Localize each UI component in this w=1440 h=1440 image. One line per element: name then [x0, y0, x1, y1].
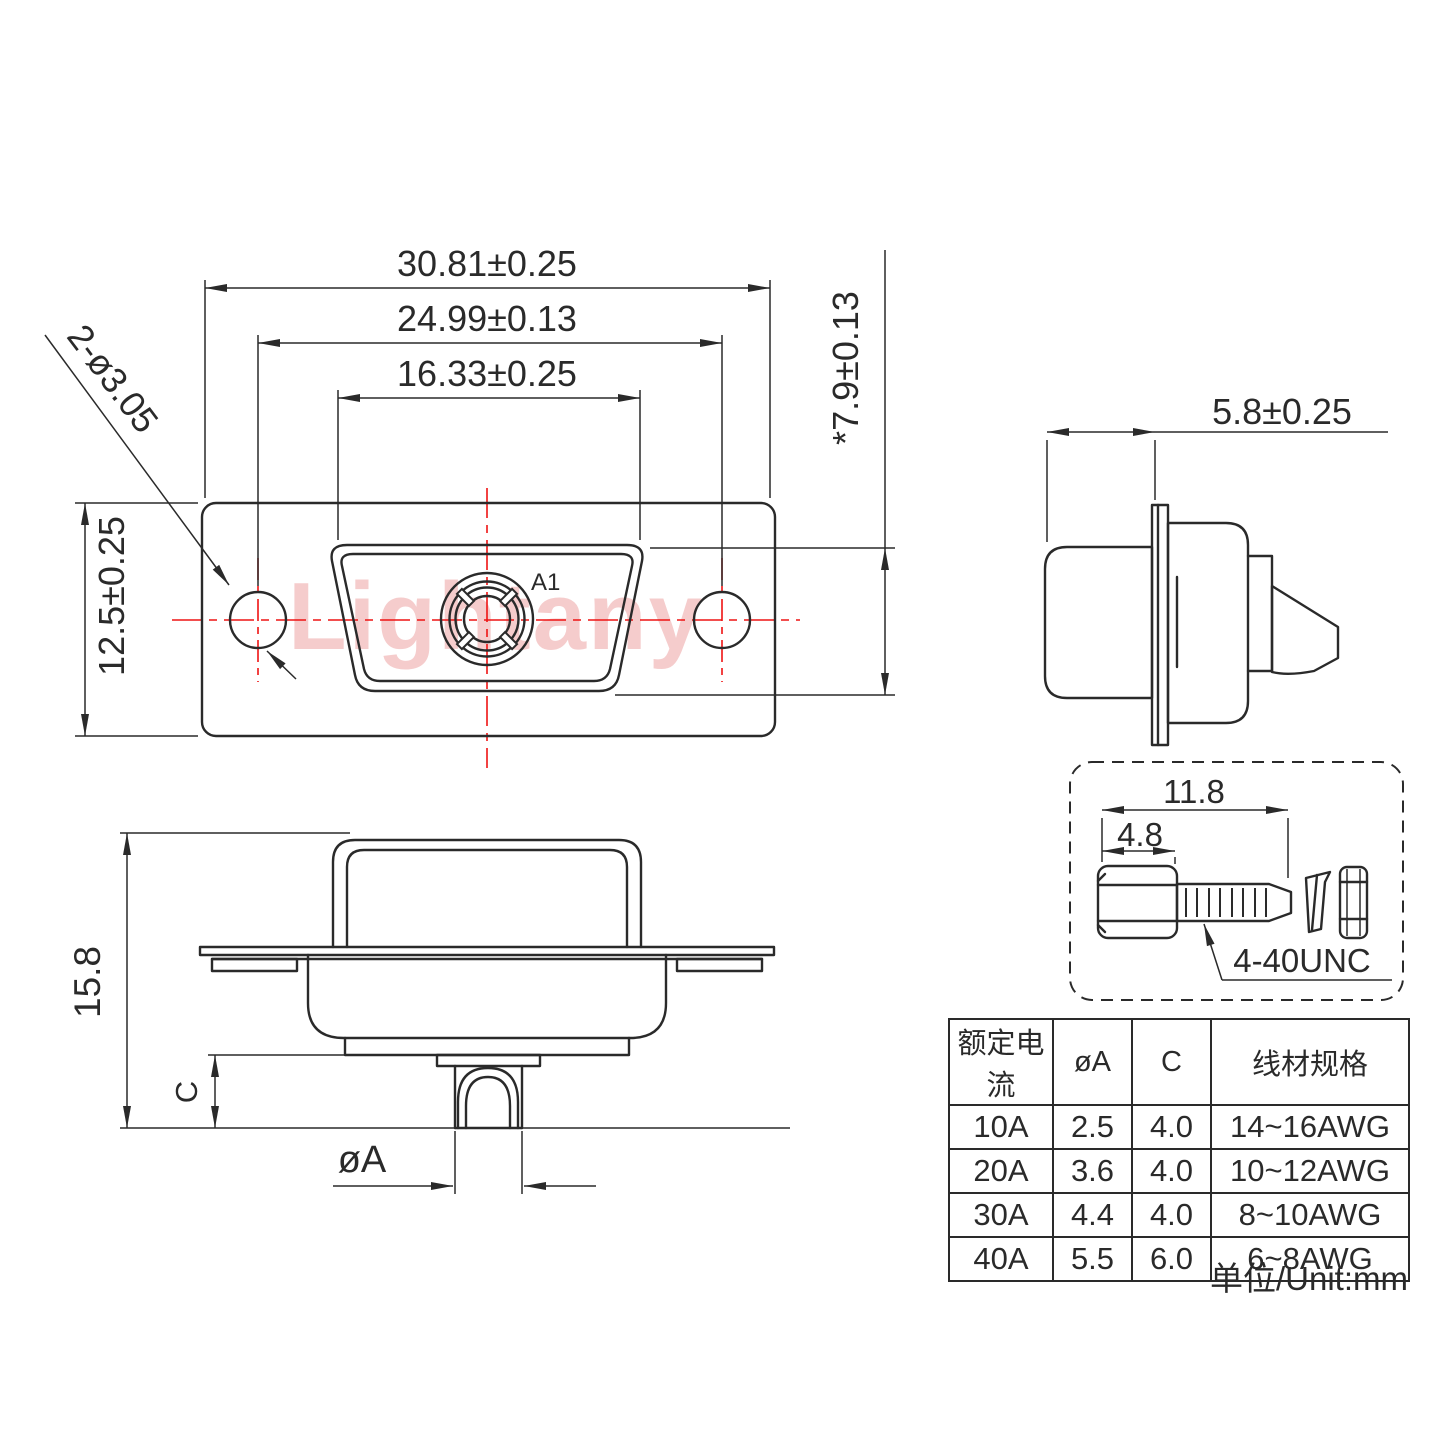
table-cell: 20A — [949, 1149, 1053, 1193]
table-cell: 2.5 — [1053, 1105, 1132, 1149]
hex-part — [1340, 867, 1367, 938]
table-header-row: 额定电流 øA C 线材规格 — [949, 1019, 1409, 1105]
table-cell: 40A — [949, 1237, 1053, 1281]
table-cell: 30A — [949, 1193, 1053, 1237]
dim-label-screw-head: 4.8 — [1117, 816, 1163, 853]
side-body-step — [1248, 556, 1272, 671]
section-shell-outer — [333, 840, 641, 947]
jack-screw — [1098, 866, 1291, 938]
dim-pin-diameter: øA — [333, 1131, 596, 1194]
dim-label-shell-height: *7.9±0.13 — [825, 291, 866, 445]
dim-label-mount-holes: 2-ø3.05 — [59, 317, 166, 441]
screw-shaft — [1177, 884, 1291, 921]
dim-label-outer-width: 30.81±0.25 — [397, 243, 577, 284]
section-flange — [200, 947, 774, 955]
table-row: 30A 4.4 4.0 8~10AWG — [949, 1193, 1409, 1237]
dim-screw-head: 4.8 — [1102, 816, 1175, 864]
thread-spec-label: 4-40UNC — [1233, 942, 1371, 979]
thread-callout: 4-40UNC — [1204, 924, 1392, 980]
side-wire-cone — [1272, 586, 1338, 674]
dim-label-screw-total: 11.8 — [1163, 773, 1225, 810]
screw-head — [1098, 866, 1177, 938]
dim-shell-width: 16.33±0.25 — [338, 353, 640, 540]
table-header-wire: 线材规格 — [1211, 1019, 1409, 1105]
front-view: A1 30.81±0.25 24.99±0.13 — [45, 243, 895, 768]
screw-threads — [1186, 888, 1266, 917]
section-flange-tab-right — [677, 959, 762, 971]
table-cell: 14~16AWG — [1211, 1105, 1409, 1149]
table-cell: 4.0 — [1132, 1105, 1211, 1149]
table-header-c: C — [1132, 1019, 1211, 1105]
dim-hole-span: 24.99±0.13 — [258, 298, 722, 586]
dim-label-total-height: 15.8 — [67, 946, 108, 1018]
unit-note: 单位/Unit:mm — [1100, 1252, 1408, 1300]
dim-label-flange-height: 12.5±0.25 — [91, 516, 132, 676]
table-header-diameter: øA — [1053, 1019, 1132, 1105]
side-body — [1168, 523, 1248, 723]
table-cell: 4.0 — [1132, 1149, 1211, 1193]
side-view: 5.8±0.25 — [1045, 391, 1388, 745]
section-flange-tab-left — [212, 959, 297, 971]
spec-table: 额定电流 øA C 线材规格 10A 2.5 4.0 14~16AWG 20A … — [948, 1018, 1410, 1282]
table-cell: 10A — [949, 1105, 1053, 1149]
dim-label-shell-width: 16.33±0.25 — [397, 353, 577, 394]
dim-depth: 5.8±0.25 — [1047, 391, 1388, 542]
dim-solder-depth: C — [169, 1055, 345, 1128]
table-cell: 8~10AWG — [1211, 1193, 1409, 1237]
solder-cup — [455, 1066, 522, 1128]
table-cell: 3.6 — [1053, 1149, 1132, 1193]
centerlines — [172, 488, 800, 768]
side-flange-plate — [1152, 505, 1168, 745]
side-mating-shell — [1045, 547, 1152, 698]
solder-pot-flange — [437, 1055, 540, 1066]
drawing-canvas: Lightany — [0, 0, 1440, 1440]
section-view: 15.8 C øA — [67, 833, 790, 1194]
dim-label-solder-depth: C — [169, 1081, 204, 1103]
dim-label-depth: 5.8±0.25 — [1212, 391, 1352, 432]
screw-accessories — [1306, 867, 1367, 938]
table-row: 20A 3.6 4.0 10~12AWG — [949, 1149, 1409, 1193]
section-platform — [345, 1038, 629, 1055]
wedge-part — [1306, 872, 1330, 932]
section-insulator-cup — [308, 955, 666, 1038]
dim-label-hole-span: 24.99±0.13 — [397, 298, 577, 339]
section-shell-inner — [347, 850, 627, 947]
dim-label-pin-diameter: øA — [338, 1139, 387, 1181]
table-row: 10A 2.5 4.0 14~16AWG — [949, 1105, 1409, 1149]
table-header-current: 额定电流 — [949, 1019, 1053, 1105]
screw-detail: 11.8 4.8 — [1070, 762, 1403, 1000]
table-cell: 4.0 — [1132, 1193, 1211, 1237]
table-cell: 10~12AWG — [1211, 1149, 1409, 1193]
contact-a1-label: A1 — [531, 569, 560, 596]
table-cell: 4.4 — [1053, 1193, 1132, 1237]
dim-shell-height: *7.9±0.13 — [615, 250, 895, 695]
